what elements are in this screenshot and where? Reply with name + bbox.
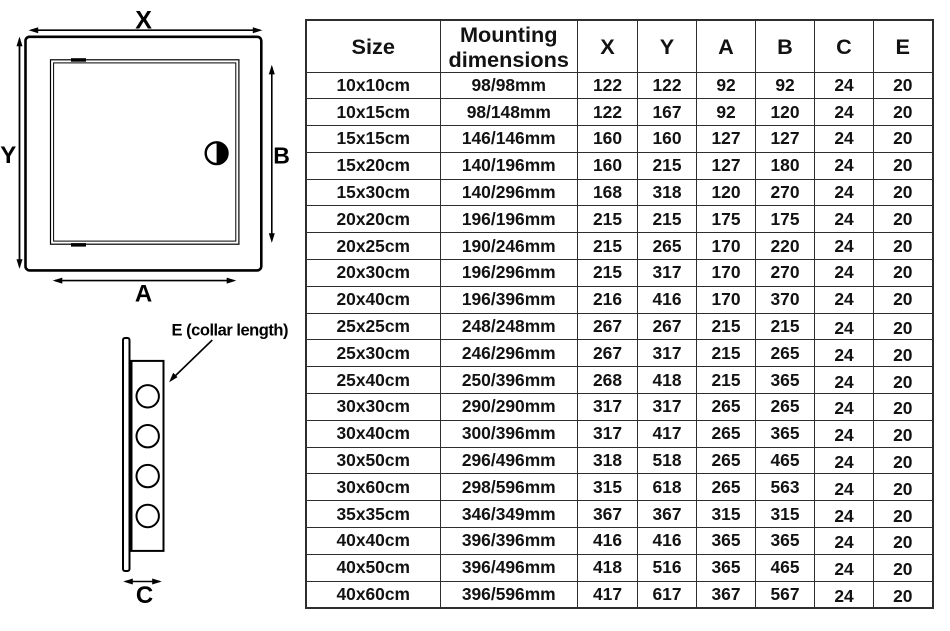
svg-text:C: C (136, 582, 153, 609)
svg-text:Y: Y (0, 142, 16, 169)
svg-text:B: B (273, 143, 290, 169)
svg-text:E (collar length): E (collar length) (172, 322, 289, 340)
svg-text:A: A (135, 281, 152, 308)
svg-text:X: X (135, 6, 152, 34)
